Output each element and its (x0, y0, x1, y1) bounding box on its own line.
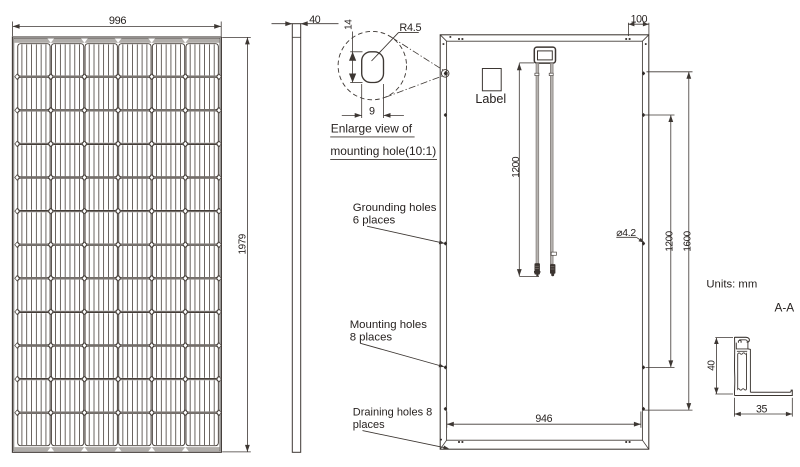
svg-text:8 places: 8 places (350, 332, 393, 344)
svg-text:Mounting holes: Mounting holes (350, 319, 428, 331)
svg-text:mounting hole(10:1): mounting hole(10:1) (330, 144, 436, 158)
svg-text:100: 100 (631, 13, 648, 25)
svg-text:996: 996 (109, 15, 126, 27)
svg-text:35: 35 (756, 403, 767, 415)
svg-text:1600: 1600 (682, 230, 693, 251)
svg-text:Draining holes 8: Draining holes 8 (353, 407, 433, 419)
svg-text:1200: 1200 (511, 156, 522, 178)
svg-text:40: 40 (707, 360, 718, 371)
svg-text:1200: 1200 (664, 230, 675, 251)
svg-text:A-A: A-A (775, 301, 795, 315)
svg-text:Grounding holes: Grounding holes (353, 202, 437, 214)
svg-text:Enlarge view of: Enlarge view of (331, 122, 413, 136)
svg-text:6 places: 6 places (353, 215, 396, 227)
svg-text:946: 946 (535, 413, 552, 425)
svg-text:9: 9 (369, 106, 375, 118)
svg-text:Units: mm: Units: mm (706, 278, 757, 290)
svg-text:places: places (353, 419, 385, 431)
svg-text:Label: Label (475, 92, 506, 106)
svg-text:14: 14 (343, 19, 354, 30)
svg-text:1979: 1979 (238, 233, 249, 254)
svg-text:40: 40 (309, 14, 320, 26)
